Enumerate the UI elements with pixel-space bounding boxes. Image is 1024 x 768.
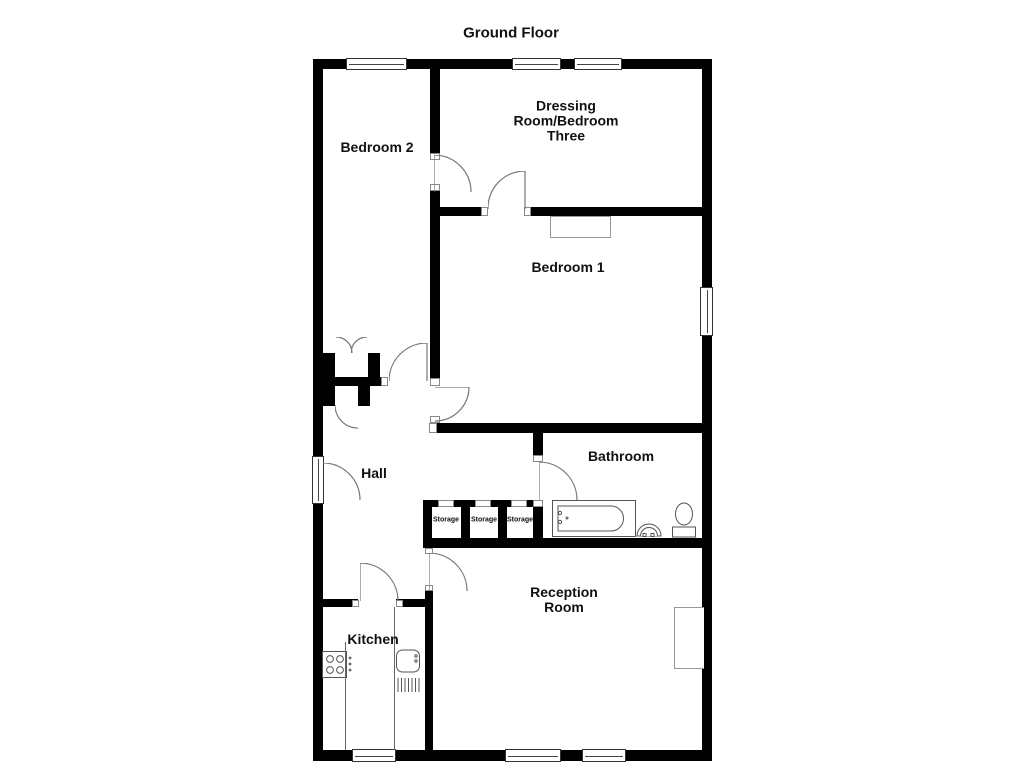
wall-dressing-bedroom1-right: [524, 207, 702, 216]
kitchen-counter-edge-right: [394, 607, 395, 750]
door-jamb: [533, 500, 543, 507]
window-dressing-top-2: [574, 58, 622, 70]
label-reception: Reception Room: [514, 585, 614, 615]
door-front-entrance: [323, 463, 361, 501]
storage-door: [438, 500, 454, 507]
wall-storage-divider1: [461, 507, 470, 538]
wall-bedroom2-south: [313, 377, 381, 386]
bathtub-symbol: [552, 500, 637, 538]
door-jamb: [481, 207, 488, 216]
wall-kitchen-reception: [425, 607, 433, 750]
window-reception-bottom-2: [582, 749, 626, 762]
door-reception: [429, 553, 468, 592]
door-bedroom2-dressing: [434, 155, 472, 193]
wall-storage-left: [423, 507, 432, 538]
door-jamb: [533, 455, 543, 462]
page-title: Ground Floor: [463, 25, 559, 42]
label-storage-1: Storage: [433, 517, 459, 524]
wall-bedroom1-south: [437, 423, 702, 433]
door-dressing-room: [488, 171, 526, 210]
wall-wardrobe-stub-right: [368, 353, 380, 378]
label-bedroom2: Bedroom 2: [340, 139, 413, 155]
door-jamb: [381, 377, 388, 386]
window-bedroom1-right: [700, 287, 713, 336]
storage-door: [475, 500, 491, 507]
door-kitchen: [360, 563, 399, 602]
label-storage-2: Storage: [471, 517, 497, 524]
window-reception-bottom-1: [505, 749, 561, 762]
label-kitchen: Kitchen: [347, 631, 398, 647]
label-dressing-room: Dressing Room/Bedroom Three: [501, 99, 631, 144]
wall-dressing-bedroom1-left: [440, 207, 483, 216]
door-bedroom2: [389, 343, 428, 382]
label-bedroom1: Bedroom 1: [531, 259, 604, 275]
wall-bedroom2-dressing-upper: [430, 69, 440, 153]
wall-storage-divider2: [498, 507, 507, 538]
storage-door: [511, 500, 527, 507]
door-bedroom1: [435, 387, 470, 422]
chimney-breast: [674, 607, 704, 669]
window-dressing-top-1: [512, 58, 561, 70]
window-bedroom2-top: [346, 58, 407, 70]
door-jamb: [352, 600, 359, 607]
wall-bedroom2-bedroom1: [430, 191, 440, 378]
kitchen-sink-symbol: [395, 648, 425, 696]
door-wardrobe-right: [351, 337, 368, 354]
door-jamb: [429, 423, 437, 433]
wall-wardrobe-stub-left: [323, 353, 335, 378]
label-storage-3: Storage: [507, 517, 533, 524]
label-hall: Hall: [361, 465, 387, 481]
toilet-symbol: [669, 501, 699, 539]
wardrobe-bedroom1: [550, 216, 611, 238]
floor-plan: Ground Floor Bedroom 2 Dressing Room/Bed…: [0, 0, 1024, 768]
window-kitchen-bottom: [352, 749, 396, 762]
door-hall-cupboard: [335, 405, 359, 429]
label-bathroom: Bathroom: [588, 448, 654, 464]
wall-cupboard-stub-right: [358, 386, 370, 406]
door-jamb: [430, 378, 440, 386]
door-bathroom: [539, 462, 578, 501]
pedestal-sink-symbol: [635, 512, 663, 539]
wall-cupboard-stub-left: [323, 386, 335, 406]
wall-reception-top: [423, 538, 702, 548]
stove-hob-symbol: [322, 651, 353, 679]
kitchen-counter-edge-left: [345, 642, 346, 750]
